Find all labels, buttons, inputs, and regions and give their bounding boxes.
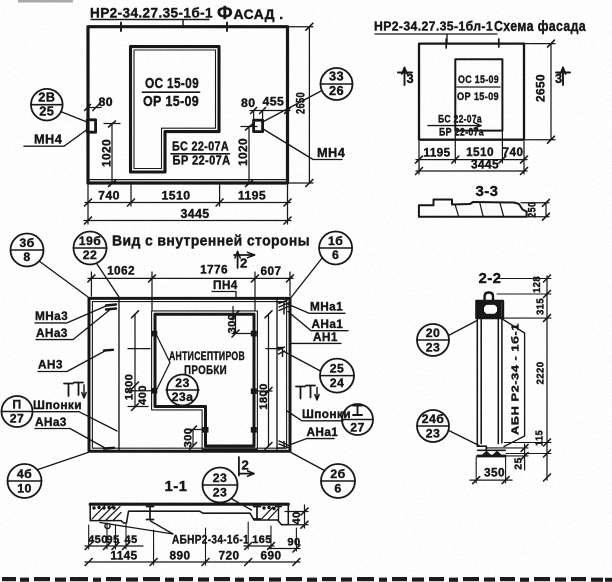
svg-text:3: 3 — [555, 71, 563, 86]
svg-text:3445: 3445 — [181, 206, 210, 221]
svg-text:АНа3: АНа3 — [35, 415, 67, 429]
svg-text:МН4: МН4 — [34, 132, 63, 147]
svg-text:НР2-34.27.35-1бл-1: НР2-34.27.35-1бл-1 — [374, 19, 493, 34]
svg-text:25: 25 — [514, 457, 525, 469]
svg-text:24: 24 — [330, 376, 344, 390]
svg-text:1145: 1145 — [110, 549, 137, 563]
svg-text:24б: 24б — [422, 412, 444, 426]
svg-text:ОР 15-09: ОР 15-09 — [457, 91, 499, 103]
svg-text:455: 455 — [263, 95, 285, 109]
svg-text:23: 23 — [426, 427, 440, 441]
svg-text:690: 690 — [261, 549, 282, 563]
svg-text:Шпонки: Шпонки — [33, 398, 82, 412]
svg-text:АН1: АН1 — [313, 330, 338, 344]
svg-text:Вид с внутренней стороны: Вид с внутренней стороны — [112, 233, 310, 250]
svg-text:350: 350 — [484, 466, 505, 480]
svg-text:2б: 2б — [330, 467, 345, 481]
svg-text:2В: 2В — [38, 90, 55, 105]
svg-text:ОС 15-09: ОС 15-09 — [458, 74, 499, 86]
svg-text:2650: 2650 — [294, 92, 308, 114]
svg-text:315: 315 — [536, 298, 547, 315]
svg-text:250: 250 — [526, 202, 538, 218]
svg-text:2: 2 — [242, 458, 250, 473]
svg-text:4б: 4б — [17, 467, 32, 481]
svg-text:25: 25 — [330, 362, 344, 376]
svg-text:25: 25 — [39, 104, 54, 119]
svg-text:Схема фасада: Схема фасада — [494, 19, 586, 35]
svg-text:П: П — [12, 398, 21, 412]
svg-text:6: 6 — [334, 482, 341, 496]
svg-text:3б: 3б — [19, 236, 34, 250]
svg-text:740: 740 — [98, 189, 120, 203]
svg-text:890: 890 — [170, 549, 191, 563]
svg-text:2220: 2220 — [536, 362, 547, 385]
svg-text:БР 22-07А: БР 22-07А — [173, 153, 231, 168]
svg-text:8: 8 — [23, 250, 30, 264]
svg-text:27: 27 — [10, 412, 24, 426]
svg-text:33: 33 — [329, 69, 344, 84]
svg-text:1-1: 1-1 — [165, 478, 188, 495]
svg-text:128: 128 — [532, 276, 543, 293]
svg-text:23: 23 — [213, 486, 227, 500]
svg-text:1800: 1800 — [124, 374, 136, 401]
svg-text:1195: 1195 — [238, 189, 266, 203]
svg-text:6: 6 — [332, 248, 339, 262]
svg-text:ФАСАД .: ФАСАД . — [217, 3, 284, 23]
svg-text:3-3: 3-3 — [476, 183, 499, 200]
svg-text:23: 23 — [426, 341, 440, 355]
svg-text:45: 45 — [124, 534, 137, 546]
svg-text:БР 22-07а: БР 22-07а — [439, 127, 484, 139]
svg-text:23: 23 — [175, 376, 189, 390]
svg-text:2650: 2650 — [534, 74, 548, 102]
svg-text:95: 95 — [106, 534, 119, 546]
svg-text:1510: 1510 — [162, 189, 191, 203]
svg-text:1б: 1б — [328, 234, 343, 248]
svg-text:АБН Р2-34 - 1б-1: АБН Р2-34 - 1б-1 — [511, 323, 522, 435]
svg-text:ОР 15-09: ОР 15-09 — [143, 93, 199, 110]
svg-text:20: 20 — [426, 326, 440, 340]
svg-text:1800: 1800 — [258, 383, 270, 410]
svg-text:НР2-34.27.35-1б-1: НР2-34.27.35-1б-1 — [90, 6, 213, 21]
svg-text:80: 80 — [241, 96, 255, 110]
svg-text:ПРОБКИ: ПРОБКИ — [184, 363, 227, 377]
svg-text:10: 10 — [17, 482, 31, 496]
svg-text:90: 90 — [287, 537, 300, 549]
svg-text:1776: 1776 — [200, 263, 228, 277]
svg-text:ПН4: ПН4 — [213, 278, 238, 292]
svg-text:27: 27 — [350, 421, 364, 435]
svg-text:3: 3 — [407, 71, 415, 86]
svg-text:26: 26 — [329, 83, 344, 98]
svg-text:ОС 15-09: ОС 15-09 — [145, 75, 199, 92]
svg-text:115: 115 — [535, 430, 546, 446]
svg-text:720: 720 — [219, 549, 240, 563]
svg-text:МНа3: МНа3 — [35, 309, 68, 323]
svg-text:165: 165 — [252, 534, 272, 546]
svg-text:3445: 3445 — [471, 157, 499, 172]
svg-text:1020: 1020 — [236, 138, 250, 166]
svg-text:23: 23 — [213, 471, 227, 485]
svg-text:МНа1: МНа1 — [310, 300, 343, 314]
svg-text:400: 400 — [137, 385, 149, 405]
svg-text:740: 740 — [503, 145, 524, 159]
svg-text:1020: 1020 — [100, 139, 114, 167]
svg-text:1195: 1195 — [423, 146, 450, 160]
svg-text:2: 2 — [240, 256, 248, 271]
svg-text:22: 22 — [83, 248, 97, 262]
svg-text:АНа3: АНа3 — [36, 326, 68, 340]
svg-text:450: 450 — [88, 534, 108, 546]
svg-text:607: 607 — [261, 264, 282, 278]
svg-text:БС 22-07А: БС 22-07А — [172, 139, 229, 154]
svg-text:АНТИСЕПТИРОВ: АНТИСЕПТИРОВ — [169, 349, 245, 363]
svg-text:19б: 19б — [79, 234, 101, 248]
svg-text:МН4: МН4 — [317, 145, 346, 160]
svg-text:АБНР2-34-1б-1: АБНР2-34-1б-1 — [172, 533, 249, 547]
svg-text:1062: 1062 — [107, 264, 135, 278]
svg-text:40: 40 — [291, 511, 303, 524]
svg-text:23а: 23а — [172, 390, 194, 404]
svg-text:АН3: АН3 — [38, 358, 63, 372]
svg-text:АНа1: АНа1 — [307, 425, 339, 439]
svg-text:300: 300 — [183, 428, 195, 448]
